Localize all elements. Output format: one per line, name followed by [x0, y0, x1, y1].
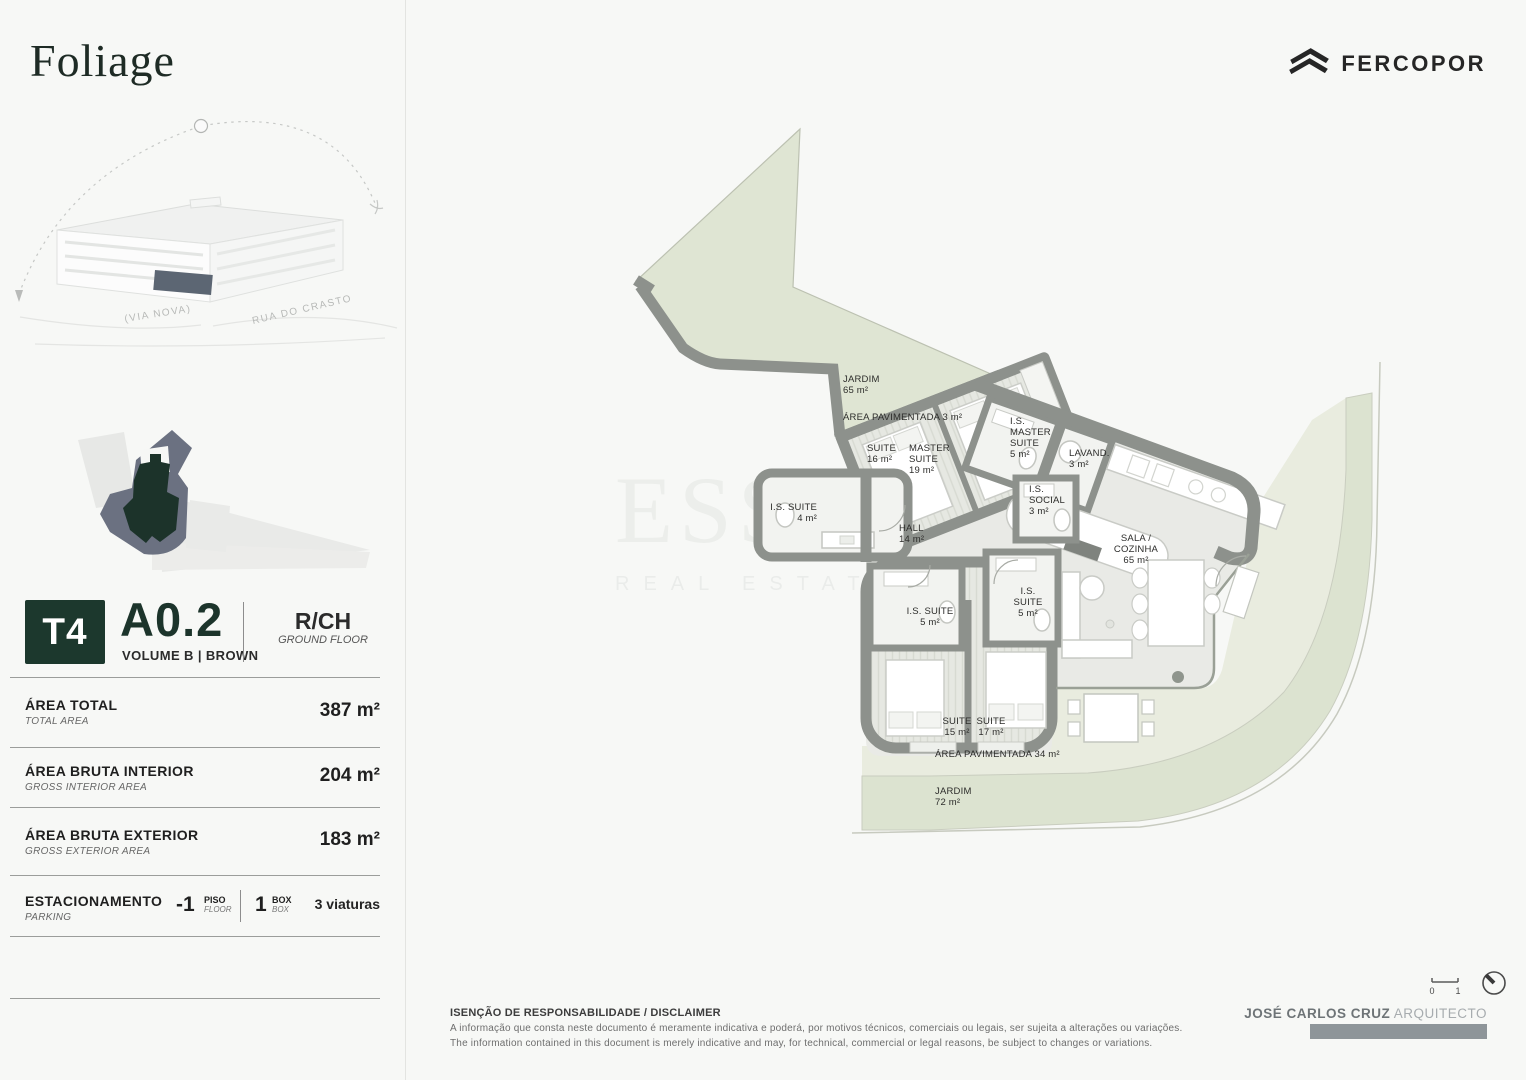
room-label-line: 5 m²: [907, 617, 954, 628]
scale-end: 1: [1455, 986, 1460, 996]
room-label-line: 4 m²: [770, 513, 817, 524]
parking-box-label: BOX: [272, 895, 292, 905]
room-label-line: MASTER: [1010, 427, 1051, 438]
parking-label: ESTACIONAMENTO: [25, 893, 162, 909]
planter-dot: [1172, 671, 1184, 683]
room-label-line: 16 m²: [867, 454, 896, 465]
street-label-via-nova: (VIA NOVA): [124, 304, 192, 325]
rule: [10, 936, 380, 937]
room-label-line: 65 m²: [843, 385, 880, 396]
room-label-line: SUITE: [1014, 597, 1043, 608]
floor-name: GROUND FLOOR: [268, 634, 378, 646]
room-label-line: 15 m²: [943, 727, 972, 738]
room-label-line: ÁREA PAVIMENTADA 34 m²: [935, 749, 1060, 760]
building-key-plan: (VIA NOVA) RUA DO CRASTO: [5, 112, 405, 352]
area-interior-value: 204 m²: [25, 765, 380, 787]
room-label-line: 14 m²: [899, 534, 924, 545]
orbit-marker-icon: [195, 120, 208, 133]
room-label-line: SUITE: [867, 443, 896, 454]
typology-badge: T4: [25, 600, 105, 664]
room-label-hall: HALL14 m²: [899, 523, 924, 545]
room-label-line: JARDIM: [843, 374, 880, 385]
room-label-lavandaria: LAVAND.3 m²: [1069, 448, 1110, 470]
room-label-line: SUITE: [943, 716, 972, 727]
disclaimer-line-pt: A informação que consta neste documento …: [450, 1023, 1182, 1034]
parking-cars: 3 viaturas: [300, 896, 380, 912]
room-label-line: COZINHA: [1114, 544, 1158, 555]
room-label-line: I.S.: [1029, 484, 1065, 495]
scale-and-north: 0 1: [1418, 966, 1518, 1008]
room-label-line: I.S. SUITE: [770, 502, 817, 513]
rule: [10, 875, 380, 876]
parking-floor-label: PISO: [204, 895, 232, 905]
floor-code: R/CH: [268, 608, 378, 635]
disclaimer-line-en: The information contained in this docume…: [450, 1038, 1152, 1049]
floor-plan: [405, 0, 1526, 1080]
street-label-rua-do-crasto: RUA DO CRASTO: [251, 293, 353, 327]
building-illustration: [20, 197, 397, 346]
architect-credit: JOSÉ CARLOS CRUZ ARQUITECTO: [1100, 1006, 1487, 1021]
room-label-is-suite-4: I.S. SUITE4 m²: [770, 502, 817, 524]
room-label-suite-16: SUITE16 m²: [867, 443, 896, 465]
room-label-is-social: I.S.SOCIAL3 m²: [1029, 484, 1065, 517]
arrow-down-icon: [15, 290, 23, 302]
room-label-line: ÁREA PAVIMENTADA 3 m²: [843, 412, 962, 423]
room-label-jardim-72: JARDIM72 m²: [935, 786, 972, 808]
parking-sub: PARKING: [25, 912, 71, 923]
parking-divider: [240, 890, 241, 922]
parking-box-value: 1: [255, 893, 267, 917]
room-label-line: MASTER: [909, 443, 950, 454]
parking-box-unit: BOX BOX: [272, 895, 292, 915]
disclaimer-title: ISENÇÃO DE RESPONSABILIDADE / DISCLAIMER: [450, 1007, 721, 1019]
room-label-area-pavimentada-34: ÁREA PAVIMENTADA 34 m²: [935, 749, 1060, 760]
area-total-value: 387 m²: [25, 700, 380, 722]
room-label-line: LAVAND.: [1069, 448, 1110, 459]
room-label-line: SUITE: [909, 454, 950, 465]
room-label-suite-15: SUITE15 m²: [943, 716, 972, 738]
room-label-line: 3 m²: [1069, 459, 1110, 470]
room-label-area-pavimentada-3: ÁREA PAVIMENTADA 3 m²: [843, 412, 962, 423]
room-label-line: HALL: [899, 523, 924, 534]
room-label-line: 5 m²: [1010, 449, 1051, 460]
room-label-line: SOCIAL: [1029, 495, 1065, 506]
room-label-line: I.S.: [1010, 416, 1051, 427]
room-label-is-master-suite: I.S.MASTERSUITE5 m²: [1010, 416, 1051, 460]
architect-name: JOSÉ CARLOS CRUZ: [1244, 1006, 1390, 1021]
room-label-suite-17: SUITE17 m²: [977, 716, 1006, 738]
architect-bar: [1310, 1024, 1487, 1039]
foliage-logo: Foliage: [30, 34, 175, 87]
scale-bar: 0 1: [1429, 978, 1460, 996]
room-label-line: SUITE: [977, 716, 1006, 727]
room-label-line: 5 m²: [1014, 608, 1043, 619]
unit-id: A0.2: [120, 592, 223, 647]
unit-divider: [243, 602, 244, 662]
parking-floor-value: -1: [176, 893, 195, 917]
parking-floor-sublabel: FLOOR: [204, 905, 232, 915]
parking-box-sublabel: BOX: [272, 905, 292, 915]
rule: [10, 807, 380, 808]
room-label-master-suite: MASTERSUITE19 m²: [909, 443, 950, 476]
rule: [10, 998, 380, 999]
room-label-is-suite-5-right: I.S.SUITE5 m²: [1014, 586, 1043, 619]
area-exterior-value: 183 m²: [25, 829, 380, 851]
room-label-line: 19 m²: [909, 465, 950, 476]
room-label-line: SALA /: [1114, 533, 1158, 544]
rule: [10, 677, 380, 678]
rule: [10, 747, 380, 748]
room-label-jardim-65: JARDIM65 m²: [843, 374, 880, 396]
typology-label: T4: [42, 611, 87, 653]
room-label-line: SUITE: [1010, 438, 1051, 449]
room-label-line: 72 m²: [935, 797, 972, 808]
room-label-line: 65 m²: [1114, 555, 1158, 566]
room-label-line: JARDIM: [935, 786, 972, 797]
room-label-sala-cozinha: SALA /COZINHA65 m²: [1114, 533, 1158, 566]
north-arrow-icon: [1483, 972, 1505, 994]
parking-floor-unit: PISO FLOOR: [204, 895, 232, 915]
room-label-is-suite-5-left: I.S. SUITE5 m²: [907, 606, 954, 628]
room-label-line: 3 m²: [1029, 506, 1065, 517]
room-label-line: 17 m²: [977, 727, 1006, 738]
architect-title: ARQUITECTO: [1394, 1006, 1487, 1021]
scale-start: 0: [1429, 986, 1434, 996]
room-label-line: I.S. SUITE: [907, 606, 954, 617]
site-locator-plan: [40, 402, 380, 592]
unit-volume: VOLUME B | BROWN: [122, 648, 258, 663]
room-label-line: I.S.: [1014, 586, 1043, 597]
